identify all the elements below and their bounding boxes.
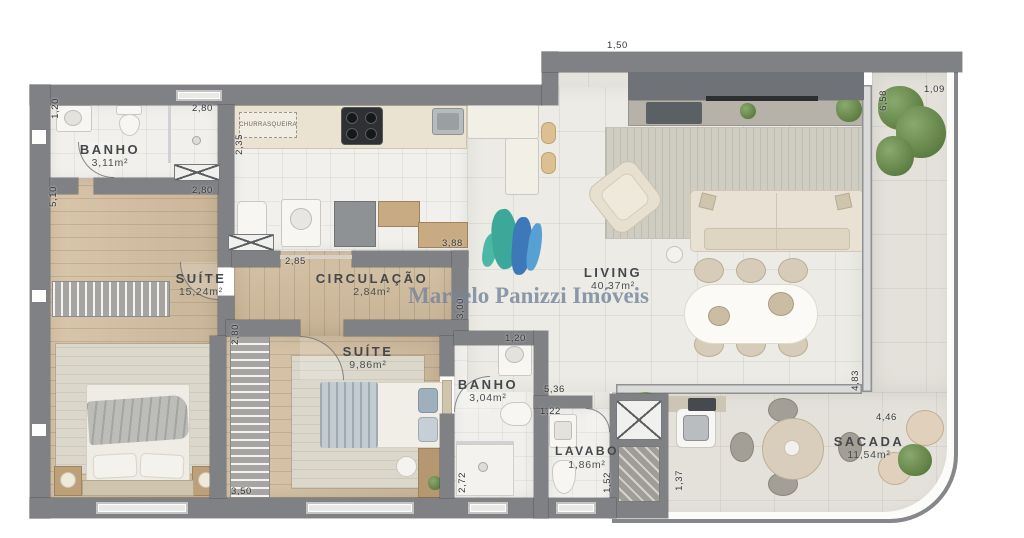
dim-1-09-balcony: 1,09 — [924, 84, 945, 95]
dim-5-36-hall: 5,36 — [544, 384, 565, 395]
dining-chair-1 — [694, 258, 724, 283]
suite1-area: 15,24m² — [158, 286, 244, 298]
side-table — [666, 246, 683, 263]
wall-kitchen-bottom-a — [232, 251, 280, 267]
left-wall-notch-2 — [32, 290, 46, 302]
living-window-glass — [862, 85, 872, 392]
suite1-closet — [52, 281, 170, 317]
wall-suite-divider — [210, 336, 226, 498]
kitchen-counter-wood-1 — [378, 201, 420, 227]
lavabo-window — [556, 502, 596, 514]
dim-4-83-sacada: 4,83 — [850, 370, 861, 391]
sofa-seat-divider — [776, 193, 777, 249]
dining-table — [684, 284, 818, 344]
suite2-window — [306, 502, 414, 514]
wall-banho2-left-b — [440, 414, 454, 498]
wall-top-right — [542, 52, 962, 72]
banho2-sink-bowl — [505, 346, 524, 363]
suite2-pillow-1 — [418, 388, 438, 413]
left-wall-notch-1 — [32, 130, 46, 144]
banho2-window — [468, 502, 508, 514]
wall-kitchen-bottom-b — [352, 251, 468, 267]
suite1-pillow-2 — [139, 453, 184, 479]
wall-banho2-left-a — [440, 336, 454, 376]
bbq-grill — [688, 398, 716, 411]
dim-2-72-banho2: 2,72 — [457, 472, 468, 493]
island-counter-side — [505, 138, 539, 195]
wall-suite2-top-b — [344, 320, 468, 336]
suite1-window — [96, 502, 188, 514]
elevator-shaft — [616, 400, 662, 440]
kitchen-duct — [228, 234, 274, 251]
dim-1-52-lavabo: 1,52 — [602, 472, 613, 493]
banho1-duct — [174, 164, 220, 181]
floor-plan: CHURRASQUEIRA — [0, 0, 1024, 538]
dining-platter-1 — [708, 306, 730, 326]
dim-3-50-suite: 3,50 — [231, 486, 252, 497]
banho1-shower-head — [192, 136, 201, 145]
suite2-bed-duvet — [320, 382, 378, 448]
dim-3-88-kitchen: 3,88 — [442, 238, 463, 249]
balcony-tree-3 — [876, 136, 914, 176]
island-stool-2 — [541, 152, 556, 174]
suite2-stool — [396, 456, 417, 477]
tv-cabinet — [646, 102, 702, 124]
banho2-toilet — [500, 402, 532, 426]
wall-banho2-lavabo-divider — [534, 331, 548, 518]
suite2-label: SUÍTE — [325, 344, 411, 359]
left-wall-notch-3 — [32, 424, 46, 436]
banho1-shower-glass — [168, 105, 171, 163]
lavabo-sink-bowl — [554, 421, 572, 440]
banho2-shower-glass — [456, 441, 514, 444]
dim-1-22-lavabo: 1,22 — [540, 406, 561, 417]
dining-chair-2 — [736, 258, 766, 283]
service-tub-bowl — [683, 415, 709, 441]
living-label: LIVING — [570, 265, 656, 280]
banho1-label: BANHO — [68, 142, 152, 157]
kitchen-sink-bowl — [437, 113, 459, 130]
island-counter-top — [467, 101, 539, 139]
dim-1-37-service: 1,37 — [674, 470, 685, 491]
dining-chair-3 — [778, 258, 808, 283]
cooktop-burner-2 — [365, 112, 377, 124]
dim-1-50-living-top: 1,50 — [607, 40, 628, 51]
sacada-label: SACADA — [822, 434, 916, 449]
dim-2-35-kitchen: 2,35 — [234, 134, 245, 155]
banho1-sink-bowl — [64, 110, 82, 126]
console-plant — [740, 103, 756, 119]
dim-2-80-closet: 2,80 — [230, 324, 241, 345]
lavabo-area: 1,86m² — [546, 459, 628, 471]
dim-2-80-banho-top: 2,80 — [192, 103, 213, 114]
cooktop-burner-3 — [346, 128, 358, 140]
dim-6-58-balcony: 6,58 — [878, 90, 889, 111]
suite2-closet — [230, 336, 270, 498]
dim-1-20-banho2: 1,20 — [505, 333, 526, 344]
dim-2-80-banho-bottom: 2,80 — [192, 185, 213, 196]
dim-4-46-sacada: 4,46 — [876, 412, 897, 423]
dining-platter-2 — [768, 292, 794, 316]
island-stool-1 — [541, 122, 556, 144]
cooktop-burner-4 — [365, 128, 377, 140]
washing-machine-door — [290, 208, 312, 230]
dim-5-10-left: 5,10 — [48, 186, 59, 207]
dim-1-20-left: 1,20 — [50, 98, 61, 119]
suite2-area: 9,86m² — [325, 359, 411, 371]
suite1-lamp-left — [60, 472, 76, 488]
sofa-backrest — [704, 228, 850, 250]
churrasqueira-label: CHURRASQUEIRA — [239, 122, 297, 128]
dim-2-85-circulation: 2,85 — [285, 256, 306, 267]
suite1-headboard — [82, 480, 194, 496]
suite1-bed-throw — [87, 395, 190, 446]
brand-logo — [480, 205, 544, 275]
sacada-chair-left — [730, 432, 754, 462]
banho2-label: BANHO — [448, 377, 528, 392]
churrasqueira-box: CHURRASQUEIRA — [239, 112, 297, 138]
suite1-label: SUÍTE — [158, 271, 244, 286]
top-wall-niche — [176, 90, 222, 101]
suite2-pillow-2 — [418, 417, 438, 442]
banho2-shower-head — [478, 462, 488, 472]
wall-top-left — [30, 85, 542, 105]
brand-watermark: Marcelo Panizzi Imóveis — [408, 283, 649, 309]
kitchen-cabinet-gray — [334, 201, 376, 247]
cooktop-burner-1 — [346, 112, 358, 124]
sliding-door — [616, 384, 862, 394]
sacada-table-vase — [784, 440, 800, 456]
lavabo-label: LAVABO — [546, 444, 628, 458]
tv-screen — [706, 96, 818, 101]
banho2-area: 3,04m² — [448, 392, 528, 404]
banho1-area: 3,11m² — [68, 157, 152, 169]
sacada-area: 11,54m² — [822, 449, 916, 461]
sofa-pillow-2 — [835, 193, 853, 211]
suite1-pillow-1 — [92, 453, 137, 479]
